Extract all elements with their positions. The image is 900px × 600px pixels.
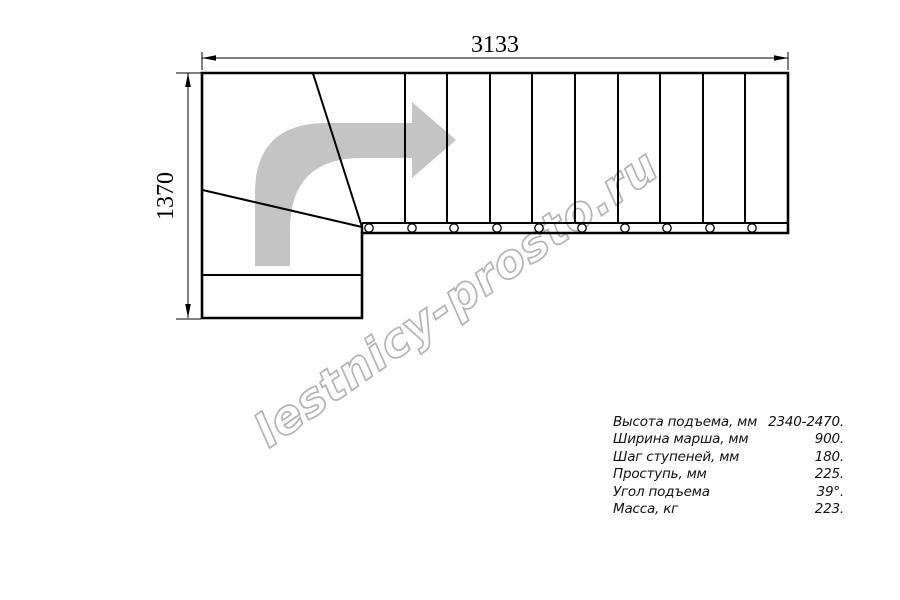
spec-value: 225. — [815, 466, 844, 483]
spec-row: Проступь, мм 225. — [613, 466, 844, 483]
stair-drawing-page: lestnicy-prosto.ru — [0, 0, 900, 600]
spec-row: Угол подъема 39°. — [613, 484, 844, 501]
spec-row: Шаг ступеней, мм 180. — [613, 449, 844, 466]
spec-label: Проступь, мм — [613, 466, 707, 483]
spec-label: Шаг ступеней, мм — [613, 449, 739, 466]
dim-arrow-down-icon — [185, 304, 191, 318]
height-dimension: 1370 — [153, 73, 201, 319]
dim-arrow-right-icon — [774, 55, 788, 61]
spec-label: Ширина марша, мм — [613, 431, 748, 448]
spec-label: Угол подъема — [613, 484, 710, 501]
tread-divider-lines — [405, 73, 745, 223]
specs-table: Высота подъема, мм 2340-2470. Ширина мар… — [613, 414, 844, 518]
height-dimension-label: 1370 — [153, 172, 179, 220]
spec-label: Высота подъема, мм — [613, 414, 757, 431]
spec-value: 2340-2470. — [768, 414, 844, 431]
spec-row: Масса, кг 223. — [613, 501, 844, 518]
spec-value: 900. — [815, 431, 844, 448]
dim-arrow-up-icon — [185, 73, 191, 87]
stringer-mount-circles — [365, 224, 756, 232]
direction-arrow-icon — [255, 102, 456, 266]
spec-row: Ширина марша, мм 900. — [613, 431, 844, 448]
dim-arrow-left-icon — [202, 55, 216, 61]
spec-value: 180. — [815, 449, 844, 466]
spec-label: Масса, кг — [613, 501, 678, 518]
width-dimension: 3133 — [202, 32, 788, 70]
spec-row: Высота подъема, мм 2340-2470. — [613, 414, 844, 431]
width-dimension-label: 3133 — [471, 32, 519, 58]
spec-value: 39°. — [817, 484, 844, 501]
spec-value: 223. — [815, 501, 844, 518]
